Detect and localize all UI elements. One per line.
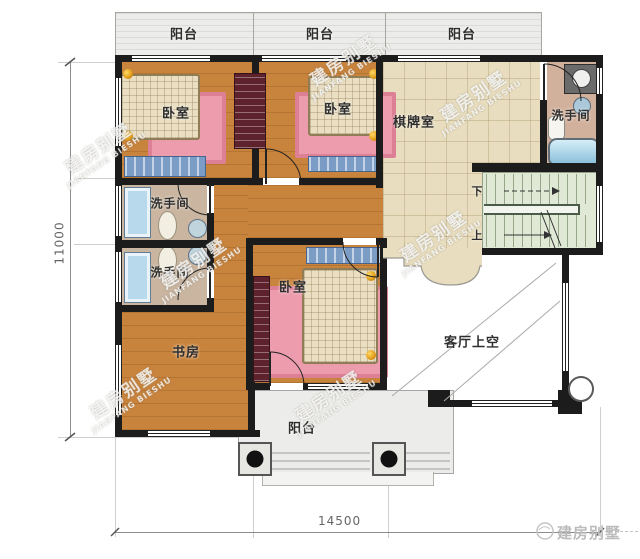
bottom-balcony-rail-left <box>270 446 370 470</box>
wall-study-top <box>115 305 214 312</box>
stair-flight-upper <box>486 174 594 204</box>
dim-line-horizontal <box>115 532 600 533</box>
window-study-bottom <box>148 430 210 437</box>
dim-line-vertical <box>70 62 71 437</box>
window-stairs-right <box>596 186 603 242</box>
stair-handrail <box>484 204 580 215</box>
label-chess-room: 棋牌室 <box>393 112 435 131</box>
wall-between-baths <box>115 240 207 248</box>
bedroom-3-lamp-top <box>366 271 376 281</box>
label-stair-down: 下 <box>472 183 483 199</box>
column-dot <box>247 451 264 468</box>
wall-bed3-right <box>380 238 387 390</box>
window-bed1-left <box>115 78 122 146</box>
brand-logo-icon-detail <box>539 527 550 530</box>
wall-bed1-bottom <box>115 178 263 185</box>
wall-void-corner-left <box>428 390 450 407</box>
balcony-column-left <box>238 442 272 476</box>
grid-line-v1 <box>115 437 116 537</box>
bath-upper-basin <box>188 219 207 238</box>
bedroom-1-lamp-bottom <box>123 131 133 141</box>
bottom-balcony-rail-right <box>404 446 450 470</box>
wall-stairs-top <box>472 163 603 172</box>
floor-plan: 阳台 阳台 阳台 卧室 卧室 棋牌室 洗手间 洗手间 洗手间 卧室 书房 客厅上… <box>0 0 640 559</box>
bedroom-2-wardrobe <box>234 73 266 149</box>
wall-bed3-top-left <box>246 238 343 245</box>
label-balcony-top-1: 阳台 <box>170 24 198 43</box>
grid-line-h1 <box>74 178 115 179</box>
window-study-left <box>115 345 122 415</box>
bedroom-2-rug <box>308 156 380 172</box>
window-bathmain-right <box>596 68 603 94</box>
label-balcony-top-3: 阳台 <box>448 24 476 43</box>
bottom-balcony-step <box>262 472 434 486</box>
bath-lower-shower <box>124 252 151 303</box>
label-bedroom-2: 卧室 <box>324 99 352 118</box>
bath-upper-toilet <box>158 211 177 240</box>
bath-upper-shower <box>124 187 151 238</box>
bedroom-3-bed <box>302 268 378 364</box>
brand-logo-icon <box>537 523 553 539</box>
label-bath-upper: 洗手间 <box>150 195 189 212</box>
wall-baths-right-a <box>207 178 214 186</box>
label-bath-main: 洗手间 <box>551 107 590 124</box>
window-void-bottom <box>472 400 552 407</box>
label-living-void: 客厅上空 <box>444 332 500 351</box>
balcony-column-right <box>372 442 406 476</box>
grid-line-v4 <box>600 407 601 537</box>
wall-bed3-left <box>246 238 253 390</box>
dim-total-height: 11000 <box>53 221 67 264</box>
bedroom-1-rug <box>124 156 206 177</box>
chess-floor-scallop-edge <box>383 258 482 285</box>
grid-line-v2 <box>253 472 254 538</box>
wall-bathmain-left <box>540 100 547 163</box>
label-study: 书房 <box>172 342 200 361</box>
label-stair-up: 上 <box>472 227 483 243</box>
void-diagonal-1 <box>392 263 556 396</box>
bedroom-1-lamp-top <box>123 69 133 79</box>
brand-logo-text: 建房别墅 <box>557 522 621 543</box>
label-balcony-top-2: 阳台 <box>306 24 334 43</box>
label-balcony-bottom: 阳台 <box>288 418 316 437</box>
top-balcony-divider-2 <box>385 12 386 55</box>
label-bath-lower: 洗手间 <box>150 264 189 281</box>
window-bath-upper-left <box>115 186 122 236</box>
bedroom-3-wardrobe <box>253 276 270 382</box>
wall-bed3-bottom-left <box>246 383 270 390</box>
wall-bed2-bottom <box>299 178 383 185</box>
wall-bed2-right <box>376 55 383 188</box>
wall-baths-right-b <box>207 213 214 270</box>
round-column <box>568 376 594 402</box>
grid-line-h2 <box>74 244 115 245</box>
bedroom-3-lamp-bottom <box>366 350 376 360</box>
wall-hall-stub <box>376 178 383 188</box>
window-chess-top <box>398 55 480 62</box>
label-bedroom-3: 卧室 <box>279 277 307 296</box>
chess-room-floor-lower <box>383 163 482 258</box>
wall-stairs-bottom <box>482 248 603 255</box>
ext-line-top <box>58 62 115 63</box>
window-bed3-bottom <box>308 383 368 390</box>
window-bath-lower-left <box>115 252 122 302</box>
column-dot <box>381 451 398 468</box>
void-diagonal-2 <box>444 301 560 401</box>
bath-lower-basin <box>188 246 207 265</box>
stair-flight-lower <box>486 215 594 247</box>
bedroom-3-rug <box>306 247 382 264</box>
window-bed1-top <box>132 55 210 62</box>
window-bed2-top <box>262 55 346 62</box>
label-bedroom-1: 卧室 <box>162 103 190 122</box>
bath-main-sink <box>572 69 591 88</box>
dim-total-width: 14500 <box>318 514 361 528</box>
top-balcony-divider-1 <box>253 12 254 55</box>
window-void-right <box>562 283 569 371</box>
study-floor <box>122 312 248 430</box>
